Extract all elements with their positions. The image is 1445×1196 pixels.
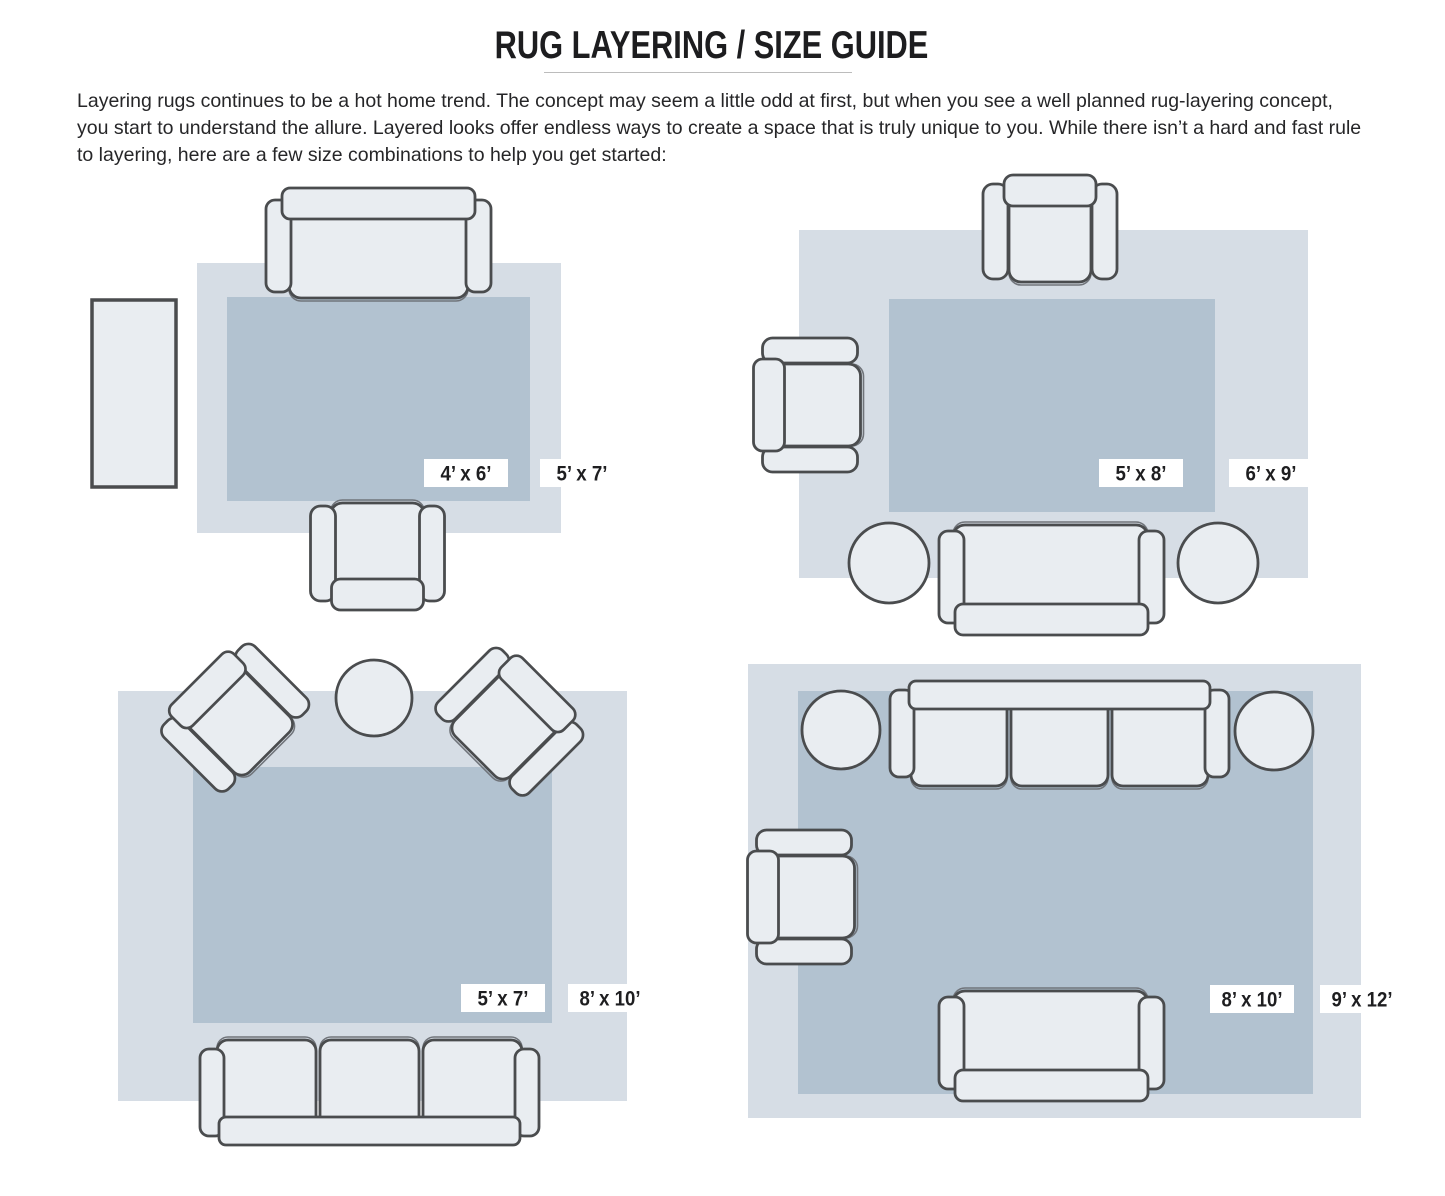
- svg-text:8’ x 10’: 8’ x 10’: [1222, 988, 1283, 1012]
- svg-text:8’ x 10’: 8’ x 10’: [580, 987, 641, 1011]
- svg-text:5’ x 7’: 5’ x 7’: [557, 462, 608, 486]
- svg-text:4’ x 6’: 4’ x 6’: [441, 462, 492, 486]
- svg-text:5’ x 7’: 5’ x 7’: [478, 987, 529, 1011]
- svg-text:5’ x 8’: 5’ x 8’: [1116, 462, 1167, 486]
- svg-text:9’ x 12’: 9’ x 12’: [1332, 988, 1393, 1012]
- svg-text:6’ x 9’: 6’ x 9’: [1246, 462, 1297, 486]
